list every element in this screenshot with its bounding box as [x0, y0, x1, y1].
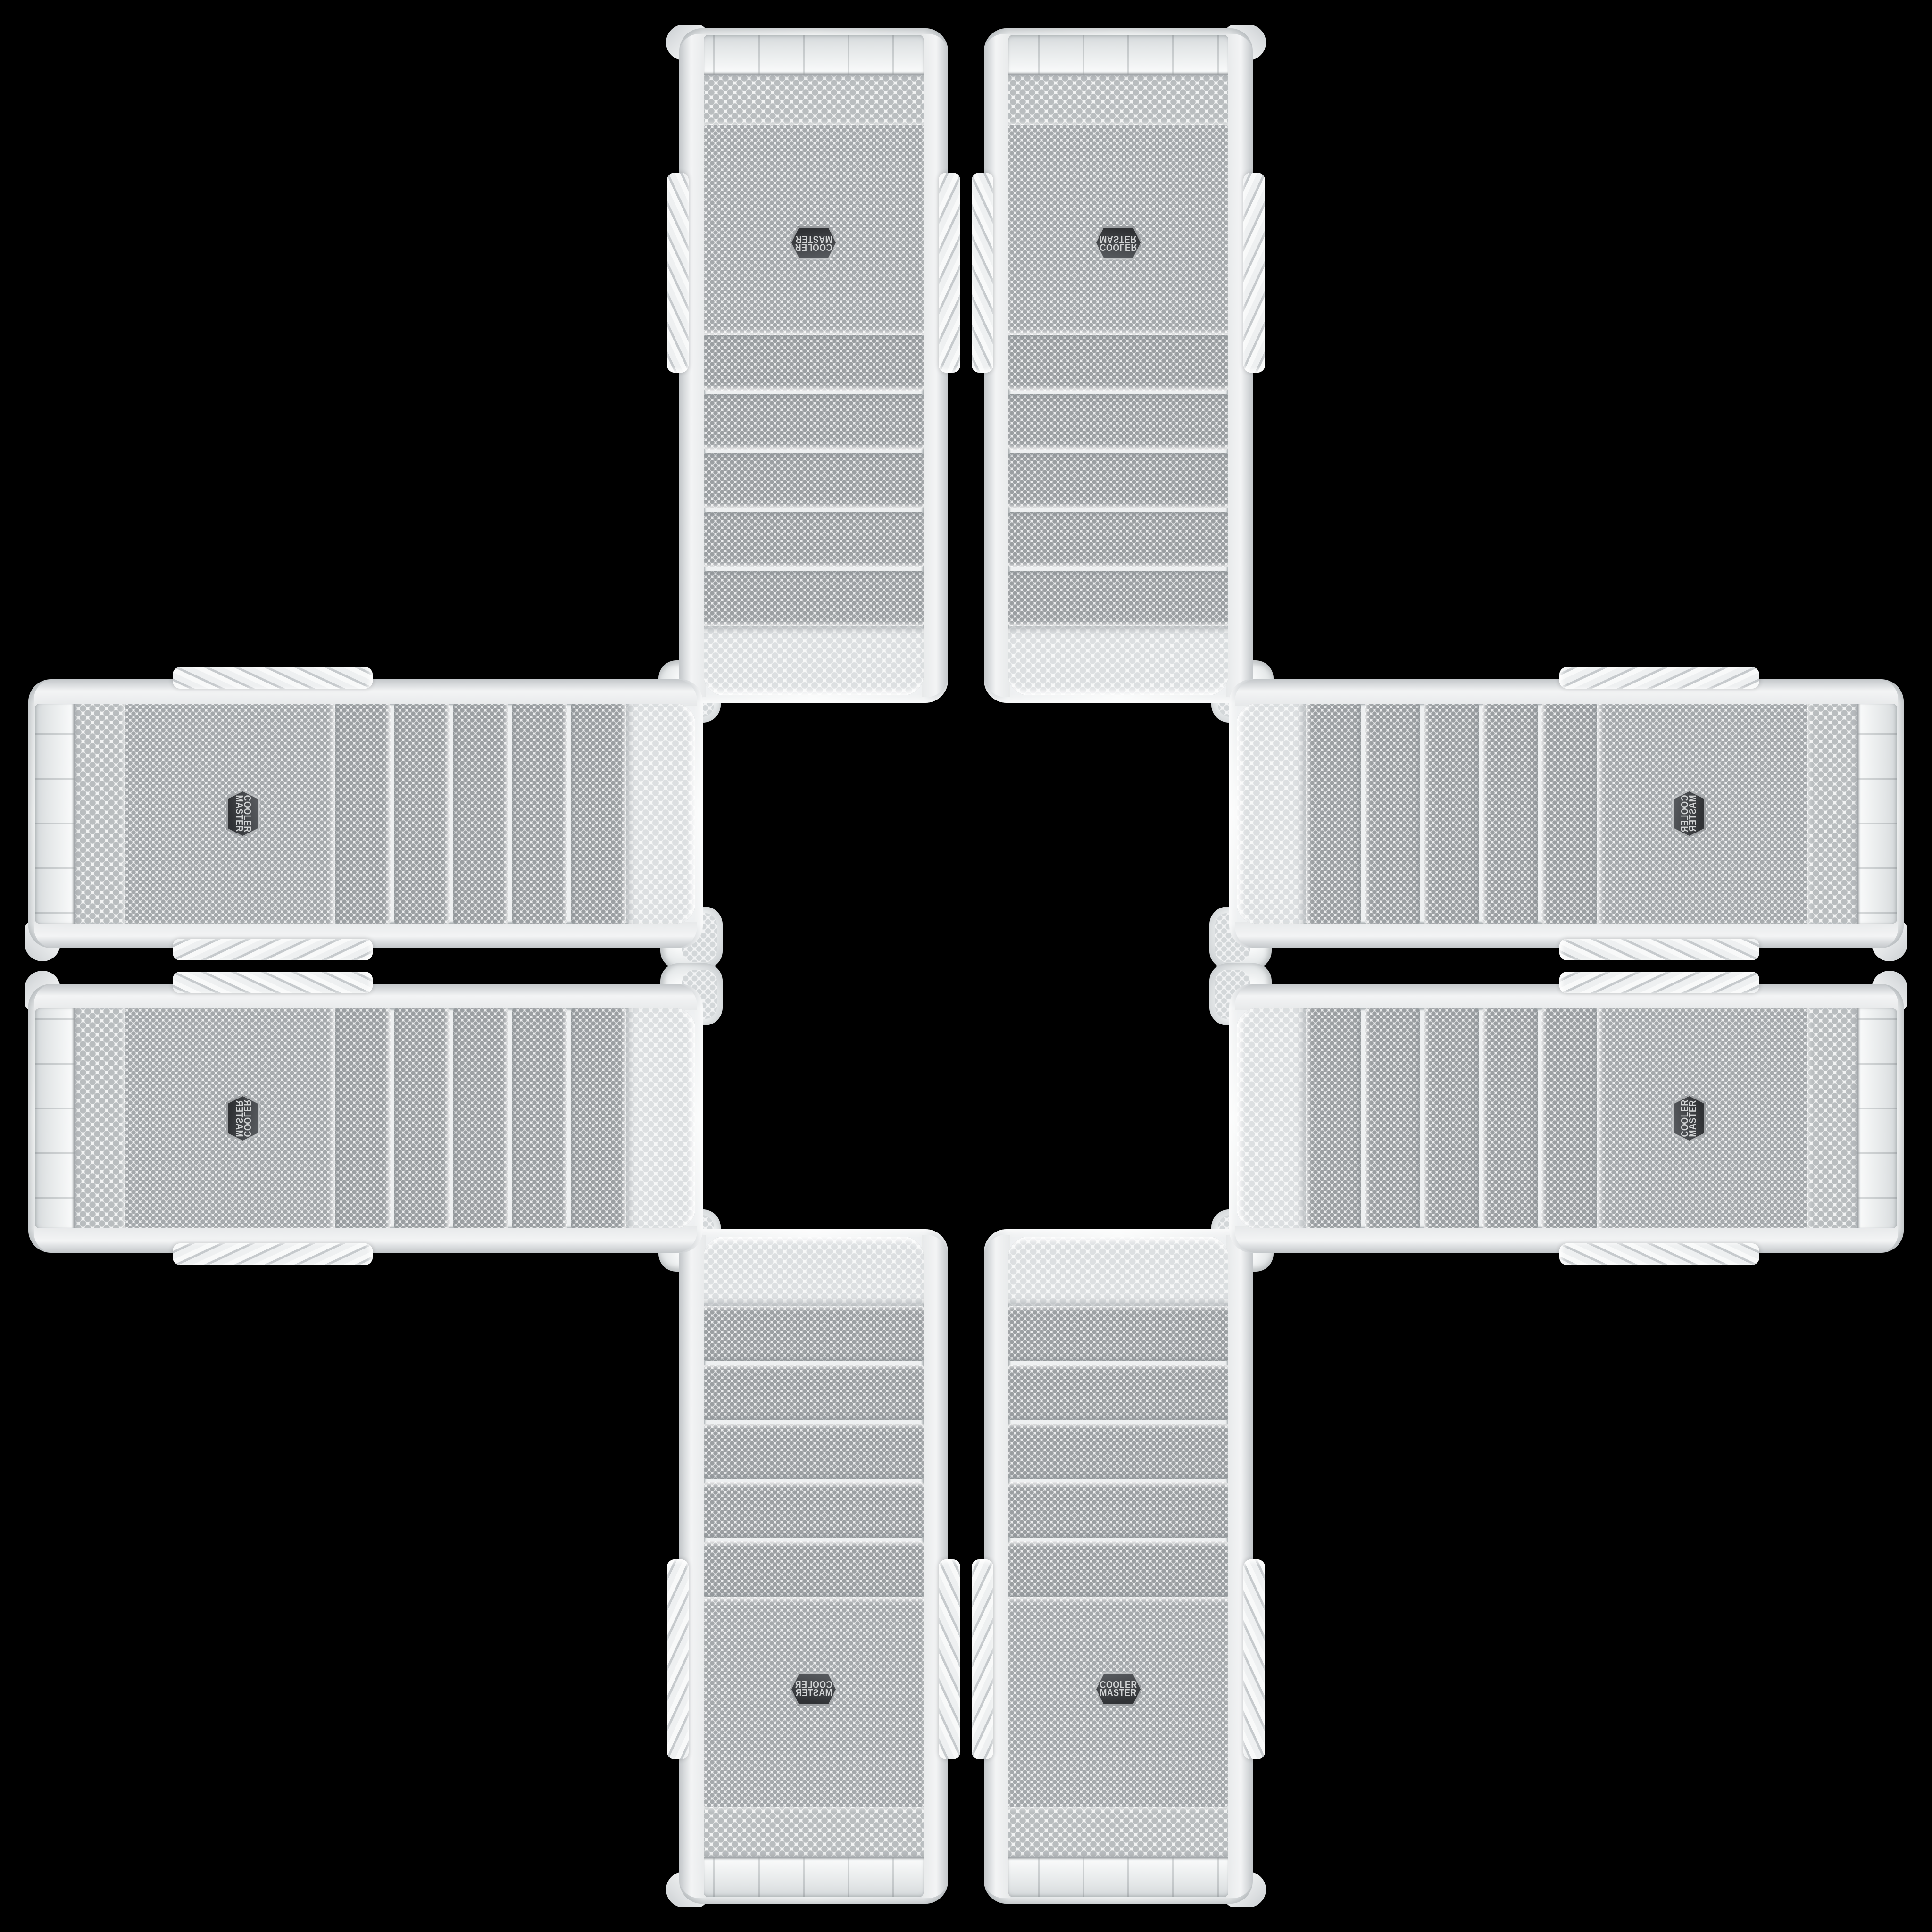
badge-brand-line2: MASTER [1100, 1689, 1137, 1698]
pc-case-right-bottom: COOLER MASTER [1229, 984, 1904, 1253]
drive-bay-cover-4 [1482, 1008, 1538, 1228]
badge-brand-line2: MASTER [234, 1100, 243, 1137]
grip-ridges-right [1559, 939, 1759, 960]
cooler-master-badge: COOLER MASTER [790, 226, 838, 260]
cooler-master-badge-face: COOLER MASTER [1674, 791, 1704, 836]
front-intake-mesh: COOLER MASTER [125, 704, 335, 924]
drive-bay-cover-1 [1306, 704, 1361, 924]
top-vent-mesh [1008, 1237, 1228, 1306]
side-rail-right [1226, 34, 1253, 697]
drive-bay-cover-2 [1008, 512, 1228, 567]
side-rail-right [679, 1235, 706, 1898]
lower-vent-mesh [1008, 75, 1228, 125]
top-vent-mesh [1008, 626, 1228, 695]
pc-case-left-bottom: COOLER MASTER [28, 984, 703, 1253]
drive-bay-cover-5 [704, 335, 924, 391]
pc-case-right-top: COOLER MASTER [1229, 679, 1904, 948]
badge-brand-line2: MASTER [234, 795, 243, 832]
drive-bay-cover-2 [1365, 704, 1420, 924]
grip-ridges-right [1559, 972, 1759, 993]
side-rail-left [984, 34, 1010, 697]
drive-bay-cover-2 [1008, 1365, 1228, 1420]
drive-bay-cover-1 [1008, 1306, 1228, 1361]
grip-ridges-right [667, 1559, 689, 1759]
cooler-master-badge-face: COOLER MASTER [228, 1096, 258, 1141]
drive-bay-cover-5 [1541, 1008, 1597, 1228]
drive-bay-cover-3 [453, 1008, 508, 1228]
drive-bay-cover-4 [1482, 704, 1538, 924]
cooler-master-badge-face: COOLER MASTER [1096, 1674, 1141, 1704]
cooler-master-badge: COOLER MASTER [1672, 1094, 1706, 1142]
drive-bay-cover-3 [1424, 704, 1479, 924]
cooler-master-badge: COOLER MASTER [1094, 1672, 1142, 1706]
grip-ridges-right [173, 972, 373, 993]
drive-bay-cover-5 [1008, 335, 1228, 391]
bottom-bezel [704, 1857, 924, 1897]
front-intake-mesh: COOLER MASTER [704, 125, 924, 335]
cooler-master-badge: COOLER MASTER [226, 790, 260, 838]
pc-case-bottom-right: COOLER MASTER [984, 1229, 1253, 1904]
drive-bay-cover-2 [512, 1008, 567, 1228]
drive-bay-cover-5 [1008, 1541, 1228, 1597]
drive-bay-cover-1 [1008, 571, 1228, 626]
grip-ridges-left [939, 173, 960, 373]
front-intake-mesh: COOLER MASTER [1597, 704, 1807, 924]
front-panel: COOLER MASTER [1237, 704, 1897, 924]
lower-vent-mesh [1807, 1008, 1857, 1228]
front-panel: COOLER MASTER [704, 1237, 924, 1897]
drive-bay-cover-2 [704, 1365, 924, 1420]
drive-bay-cover-1 [704, 1306, 924, 1361]
drive-bay-cover-3 [704, 1424, 924, 1479]
side-rail-left [1235, 1226, 1898, 1253]
grip-ridges-right [173, 939, 373, 960]
side-rail-right [34, 922, 697, 948]
front-panel: COOLER MASTER [1008, 35, 1228, 695]
bottom-bezel [1008, 1857, 1228, 1897]
cooler-master-badge-face: COOLER MASTER [1096, 228, 1141, 258]
drive-bay-cover-3 [1008, 1424, 1228, 1479]
lower-vent-mesh [704, 75, 924, 125]
side-rail-left [1235, 679, 1898, 706]
grip-ridges-left [173, 667, 373, 689]
grip-ridges-left [1559, 667, 1759, 689]
top-vent-mesh [704, 1237, 924, 1306]
grip-ridges-left [939, 1559, 960, 1759]
grip-ridges-right [667, 173, 689, 373]
cooler-master-badge-face: COOLER MASTER [228, 791, 258, 836]
front-intake-mesh: COOLER MASTER [1008, 125, 1228, 335]
side-rail-left [34, 1226, 697, 1253]
side-rail-right [34, 984, 697, 1010]
cooler-master-badge: COOLER MASTER [790, 1672, 838, 1706]
bottom-bezel [35, 1008, 75, 1228]
drive-bay-cover-4 [394, 704, 450, 924]
top-vent-mesh [704, 626, 924, 695]
drive-bay-cover-4 [394, 1008, 450, 1228]
side-rail-left [984, 1235, 1010, 1898]
grip-ridges-right [1243, 1559, 1265, 1759]
side-rail-right [1235, 984, 1898, 1010]
cooler-master-badge: COOLER MASTER [1094, 226, 1142, 260]
top-vent-mesh [626, 704, 695, 924]
front-panel: COOLER MASTER [1237, 1008, 1897, 1228]
top-vent-mesh [626, 1008, 695, 1228]
top-vent-mesh [1237, 704, 1306, 924]
drive-bay-cover-2 [1365, 1008, 1420, 1228]
pc-case-left-top: COOLER MASTER [28, 679, 703, 948]
badge-brand-line2: MASTER [1100, 234, 1137, 243]
pc-case-top-left: COOLER MASTER [679, 28, 948, 703]
grip-ridges-left [972, 1559, 993, 1759]
cooler-master-badge-face: COOLER MASTER [791, 228, 836, 258]
badge-brand-line2: MASTER [795, 234, 832, 243]
lower-vent-mesh [75, 704, 125, 924]
drive-bay-cover-3 [453, 704, 508, 924]
side-rail-left [922, 1235, 948, 1898]
front-intake-mesh: COOLER MASTER [704, 1597, 924, 1807]
drive-bay-cover-5 [335, 704, 391, 924]
grip-ridges-right [1243, 173, 1265, 373]
badge-brand-line2: MASTER [1689, 795, 1698, 832]
bottom-bezel [704, 35, 924, 75]
drive-bay-cover-1 [571, 1008, 626, 1228]
side-rail-right [1235, 922, 1898, 948]
front-intake-mesh: COOLER MASTER [1597, 1008, 1807, 1228]
cooler-master-badge: COOLER MASTER [226, 1094, 260, 1142]
grip-ridges-left [972, 173, 993, 373]
lower-vent-mesh [1807, 704, 1857, 924]
bottom-bezel [35, 704, 75, 924]
pc-case-bottom-left: COOLER MASTER [679, 1229, 948, 1904]
drive-bay-cover-5 [704, 1541, 924, 1597]
bottom-bezel [1857, 704, 1897, 924]
side-rail-left [922, 34, 948, 697]
front-intake-mesh: COOLER MASTER [125, 1008, 335, 1228]
drive-bay-cover-3 [1424, 1008, 1479, 1228]
front-panel: COOLER MASTER [35, 704, 695, 924]
lower-vent-mesh [1008, 1807, 1228, 1857]
drive-bay-cover-4 [1008, 394, 1228, 450]
drive-bay-cover-1 [1306, 1008, 1361, 1228]
badge-brand-line2: MASTER [1689, 1100, 1698, 1137]
drive-bay-cover-2 [512, 704, 567, 924]
cooler-master-badge-face: COOLER MASTER [791, 1674, 836, 1704]
drive-bay-cover-2 [704, 512, 924, 567]
drive-bay-cover-4 [704, 1482, 924, 1538]
collage-scene: COOLER MASTER [0, 0, 1932, 1932]
drive-bay-cover-4 [704, 394, 924, 450]
bottom-bezel [1008, 35, 1228, 75]
front-intake-mesh: COOLER MASTER [1008, 1597, 1228, 1807]
side-rail-right [679, 34, 706, 697]
drive-bay-cover-5 [1541, 704, 1597, 924]
lower-vent-mesh [75, 1008, 125, 1228]
side-rail-right [1226, 1235, 1253, 1898]
grip-ridges-left [1559, 1243, 1759, 1265]
badge-brand-line2: MASTER [795, 1689, 832, 1698]
grip-ridges-left [173, 1243, 373, 1265]
drive-bay-cover-3 [1008, 453, 1228, 508]
drive-bay-cover-1 [571, 704, 626, 924]
lower-vent-mesh [704, 1807, 924, 1857]
cooler-master-badge-face: COOLER MASTER [1674, 1096, 1704, 1141]
bottom-bezel [1857, 1008, 1897, 1228]
side-rail-left [34, 679, 697, 706]
cooler-master-badge: COOLER MASTER [1672, 790, 1706, 838]
front-panel: COOLER MASTER [704, 35, 924, 695]
front-panel: COOLER MASTER [1008, 1237, 1228, 1897]
drive-bay-cover-1 [704, 571, 924, 626]
top-vent-mesh [1237, 1008, 1306, 1228]
drive-bay-cover-3 [704, 453, 924, 508]
drive-bay-cover-4 [1008, 1482, 1228, 1538]
front-panel: COOLER MASTER [35, 1008, 695, 1228]
pc-case-top-right: COOLER MASTER [984, 28, 1253, 703]
drive-bay-cover-5 [335, 1008, 391, 1228]
